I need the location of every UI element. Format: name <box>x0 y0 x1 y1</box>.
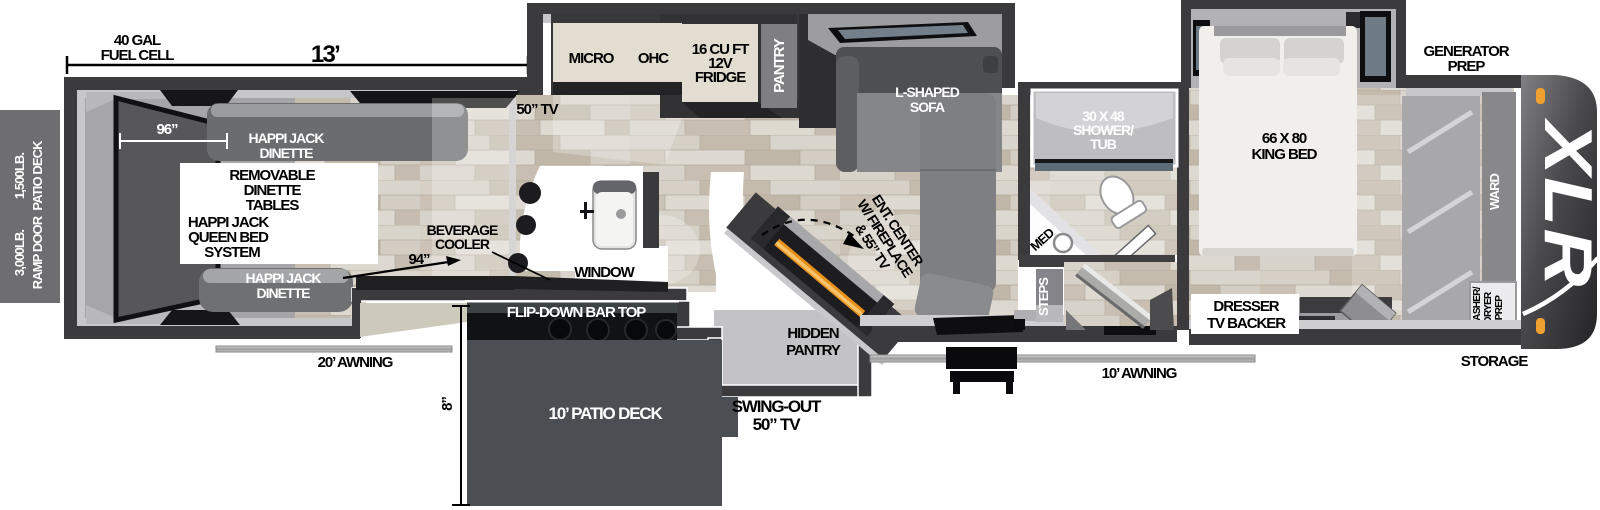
svg-text:HAPPI JACK: HAPPI JACK <box>246 270 322 286</box>
svg-text:50” TV: 50” TV <box>753 415 802 434</box>
svg-text:DRYER: DRYER <box>1483 291 1494 324</box>
svg-text:PREP: PREP <box>1448 58 1486 75</box>
svg-text:FLIP-DOWN BAR TOP: FLIP-DOWN BAR TOP <box>507 304 647 321</box>
svg-text:STORAGE: STORAGE <box>1461 353 1529 370</box>
svg-text:WINDOW: WINDOW <box>574 264 635 281</box>
svg-text:SYSTEM: SYSTEM <box>204 244 260 261</box>
svg-text:RAMP DOOR: RAMP DOOR <box>30 215 45 289</box>
svg-text:8”: 8” <box>439 397 456 411</box>
svg-text:MICRO: MICRO <box>569 50 615 67</box>
svg-text:TABLES: TABLES <box>246 197 300 214</box>
svg-text:10’ AWNING: 10’ AWNING <box>1102 365 1177 382</box>
svg-text:DINETTE: DINETTE <box>256 285 310 301</box>
svg-text:COOLER: COOLER <box>435 236 490 252</box>
svg-text:TV BACKER: TV BACKER <box>1207 315 1286 332</box>
svg-text:DRESSER: DRESSER <box>1213 298 1279 315</box>
svg-text:20’ AWNING: 20’ AWNING <box>318 354 393 371</box>
svg-text:94”: 94” <box>408 251 430 268</box>
svg-text:FUEL CELL: FUEL CELL <box>101 47 175 64</box>
svg-text:3,000LB.: 3,000LB. <box>12 230 27 276</box>
svg-text:XLR: XLR <box>1530 117 1600 289</box>
svg-text:L-SHAPED: L-SHAPED <box>895 84 960 100</box>
svg-text:1,500LB.: 1,500LB. <box>12 153 27 199</box>
svg-text:PANTRY: PANTRY <box>786 342 841 359</box>
svg-text:PANTRY: PANTRY <box>771 38 788 93</box>
svg-text:10’ PATIO DECK: 10’ PATIO DECK <box>548 404 663 423</box>
svg-text:SOFA: SOFA <box>910 99 945 115</box>
svg-text:KING BED: KING BED <box>1252 146 1318 163</box>
svg-text:DINETTE: DINETTE <box>259 145 313 161</box>
svg-text:OHC: OHC <box>638 50 669 67</box>
svg-text:HIDDEN: HIDDEN <box>787 325 838 342</box>
svg-text:13’: 13’ <box>311 41 340 68</box>
svg-text:SWING-OUT: SWING-OUT <box>732 397 822 416</box>
svg-text:50” TV: 50” TV <box>516 101 558 118</box>
svg-text:PATIO DECK: PATIO DECK <box>30 140 45 211</box>
svg-text:FRIDGE: FRIDGE <box>695 69 746 86</box>
svg-text:TUB: TUB <box>1090 136 1117 152</box>
svg-text:STEPS: STEPS <box>1036 277 1051 316</box>
svg-text:66 X 80: 66 X 80 <box>1262 130 1307 147</box>
svg-text:WARD: WARD <box>1487 173 1502 210</box>
svg-text:PREP: PREP <box>1494 295 1505 320</box>
svg-text:HAPPI JACK: HAPPI JACK <box>249 130 325 146</box>
svg-text:96”: 96” <box>156 121 178 138</box>
